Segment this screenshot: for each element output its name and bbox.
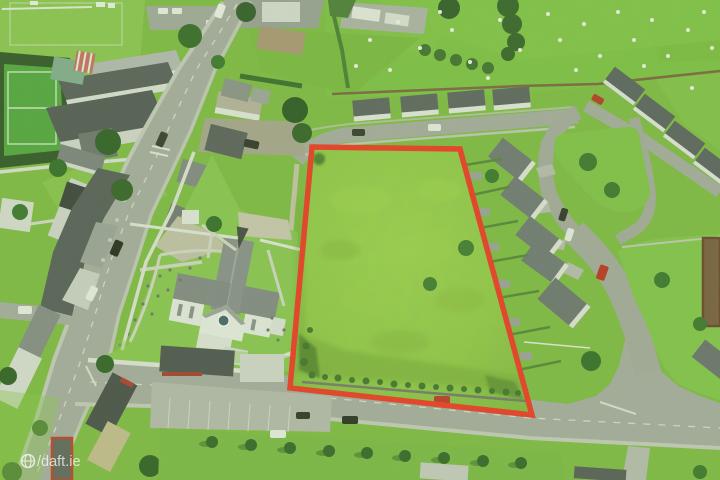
svg-text:/daft.ie: /daft.ie — [37, 454, 81, 470]
